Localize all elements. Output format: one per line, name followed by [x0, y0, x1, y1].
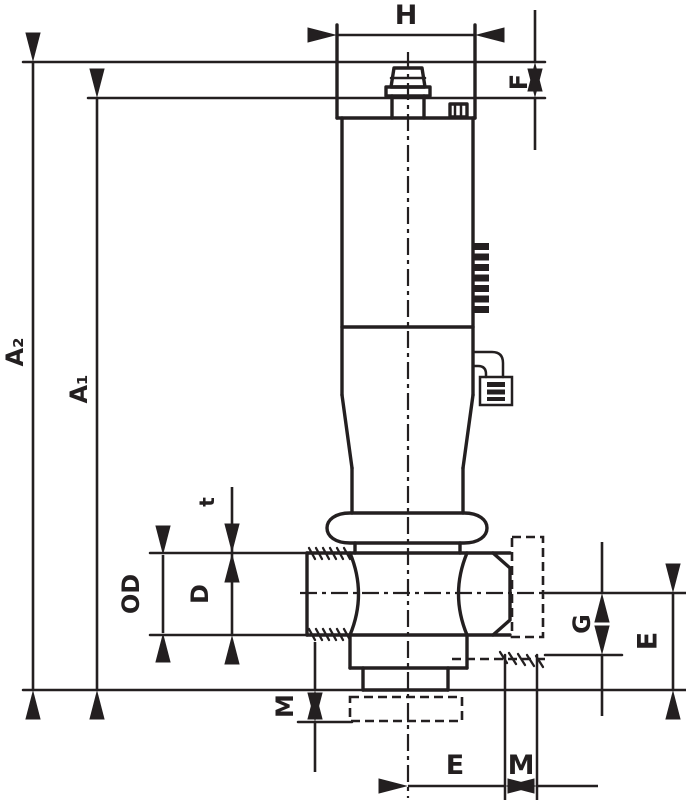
- dim-label-t: t: [195, 497, 219, 507]
- valve-drawing: H F A₂ A₁ t OD D M G E E: [0, 0, 686, 800]
- dim-label-h: H: [395, 0, 418, 31]
- dim-label-g: G: [568, 614, 596, 634]
- dimension-e-right: E: [633, 593, 674, 690]
- dim-label-m-bottom: M: [508, 750, 535, 781]
- dimension-t: t: [195, 487, 232, 553]
- dimension-od: OD: [117, 555, 163, 633]
- centerlines: [300, 52, 545, 798]
- dimension-m-left: M: [271, 642, 315, 772]
- dim-label-d: D: [186, 584, 214, 604]
- drawing-canvas: H F A₂ A₁ t OD D M G E E: [0, 0, 686, 800]
- dimension-h: H: [337, 0, 475, 35]
- valve-outline: [307, 25, 543, 721]
- dim-label-a2: A₂: [1, 337, 29, 366]
- hidden-bottom-boss: [350, 697, 462, 721]
- dim-label-m-left: M: [271, 694, 299, 718]
- spring-housing: [342, 118, 481, 513]
- dim-label-e-right: E: [633, 632, 664, 650]
- elbow-detail: [473, 352, 512, 405]
- dim-label-a1: A₁: [65, 374, 93, 403]
- dimension-m-bottom: M: [508, 750, 598, 786]
- dimension-f: F: [505, 10, 535, 150]
- reference-lines: [23, 62, 686, 800]
- dimension-a2: A₂: [1, 62, 33, 690]
- dim-label-od: OD: [117, 574, 145, 614]
- hidden-outlet-socket: [512, 537, 543, 637]
- dim-label-f: F: [505, 74, 533, 90]
- dimension-e-bottom: E: [408, 750, 505, 786]
- dimension-d: D: [186, 553, 232, 635]
- dimension-a1: A₁: [65, 98, 97, 690]
- top-cap: [337, 25, 475, 118]
- dim-label-e-bottom: E: [446, 750, 464, 781]
- valve-body: [307, 537, 543, 721]
